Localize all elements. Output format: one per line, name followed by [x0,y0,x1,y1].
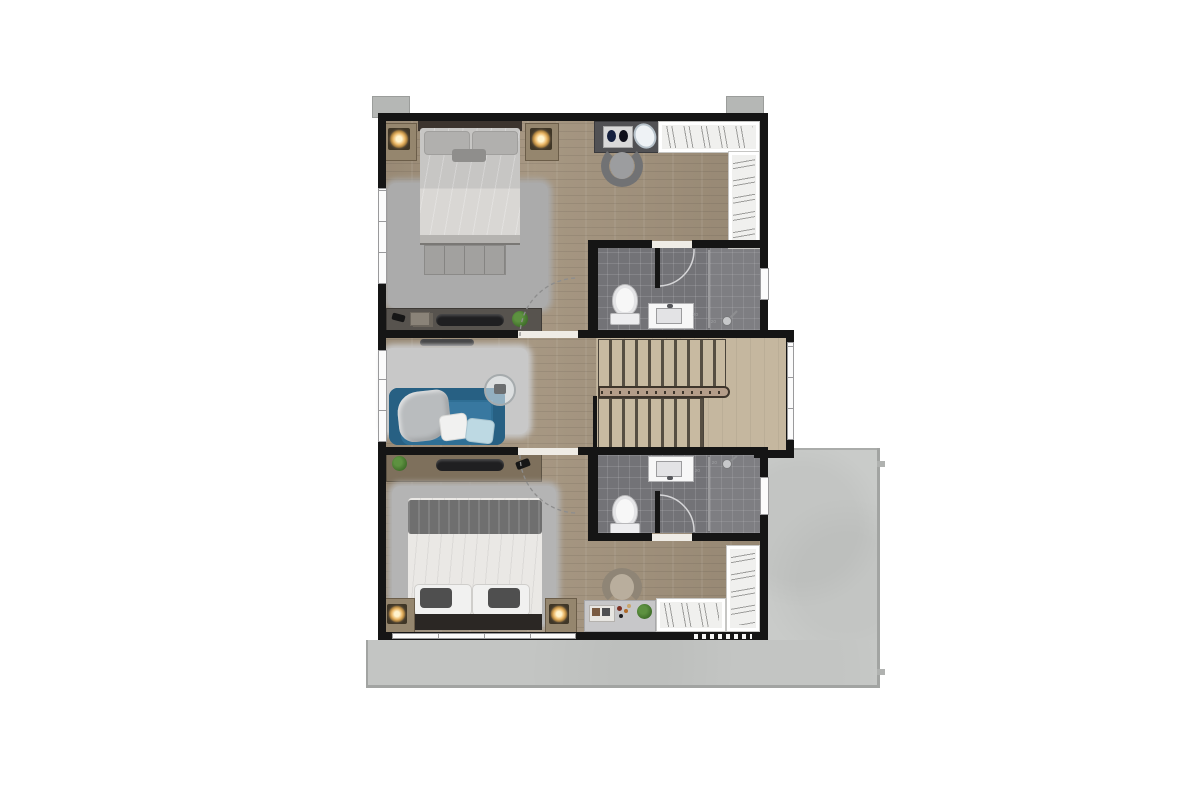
closet-1-hanger-ticks [665,126,753,148]
hall-wall-tv [420,339,474,346]
drain-mark-1a: 20 [693,313,698,318]
wall-right-upper [760,113,768,338]
bed-1-foot-frame [420,235,520,245]
dashed-vent-bottom [694,634,752,639]
walk-in-closet-1-top [658,121,760,153]
lamp-2-left-glow-icon [387,604,407,624]
wall-stair-bay-bottom [754,450,794,458]
window-hall-left [378,350,387,442]
wall-bathroom2-bottom-left [588,533,652,541]
window-bedroom1-left [378,188,387,284]
makeup-dot-black-icon [619,614,623,618]
desk-chair-seat [610,574,634,600]
wall-top [378,113,768,121]
wall-bathroom1-top-right [692,240,760,248]
wall-bathroom2-top [588,447,760,455]
bathroom-2-door-threshold [652,534,692,541]
bathroom-2-partition-stub [655,491,660,533]
toilet-1-tank [610,313,640,325]
bathroom-2-shower-zone [710,455,762,533]
lamp-left-glow-icon [388,128,410,150]
wall-bedroom2-north-left [378,447,518,455]
terrace-tick-lower [877,669,885,675]
closet-2-hanger-ticks [663,603,719,627]
floor-plan-canvas: 20 20 20 20 [0,0,1200,800]
sink-1-basin [656,308,682,324]
toilet-1-bowl [612,284,638,316]
sink-2-faucet-icon [667,476,673,480]
makeup-dot-orange-icon [624,609,628,613]
perfume-bottle-dark-icon [607,130,616,142]
wall-bathroom1-bottom [588,330,760,338]
closet-2-side-hanger-ticks [731,552,755,625]
terrace-tick-upper [877,461,885,467]
vanity-chair-seat [610,152,634,179]
balcony-bottom-edge [366,685,880,688]
bedroom-2-door-threshold [518,448,578,455]
terrace [768,448,880,640]
bathroom-1-door-threshold [652,241,692,248]
drain-mark-1b: 20 [711,320,716,325]
stair-upper-flight [598,339,726,388]
desk-plant-icon [637,604,652,619]
balcony-strip [366,640,880,688]
bench [424,245,506,275]
perfume-bottle-black-icon [619,130,628,142]
drain-mark-2b: 20 [712,461,717,466]
window-bathroom2-right [760,477,769,515]
balcony-left-edge [366,640,368,688]
bathroom-1-shower-zone [710,248,762,330]
walk-in-closet-2-side [726,545,760,632]
wall-bedroom1-south-left [378,330,518,338]
makeup-dot-gold-icon [627,604,631,608]
closet-1-side-hanger-ticks [733,158,755,242]
books-stack [410,312,430,326]
wall-bathroom2-bottom-right [692,533,760,541]
wall-right-lower [760,447,768,640]
bathroom-2-shower-partition [708,457,710,531]
walk-in-closet-1-side [728,151,760,249]
window-bedroom2-bottom [392,633,576,639]
terrace-right-edge [877,448,880,688]
stair-lower-flight [598,398,704,449]
window-bathroom1-right [760,268,769,300]
makeup-dot-red-icon [617,606,622,611]
bathroom-1-shower-partition [708,250,710,328]
stair-balusters [601,391,725,394]
pillow-blue [465,417,496,444]
tv-console-2-lens [436,459,504,471]
plant-1-icon [512,311,528,327]
wall-bathroom2-left [588,447,598,541]
tv-console-1-lens [436,314,504,326]
wall-bathroom1-left [588,240,598,338]
bedroom-1-door-threshold [518,331,578,338]
walk-in-closet-2-bottom [656,598,726,632]
window-stair-bay [787,342,794,440]
bathroom-1-partition-stub [655,248,660,288]
plant-2-icon [392,456,407,471]
desk-photo-icon-2 [602,608,610,616]
desk-photo-icon [592,608,600,616]
lamp-2-right-glow-icon [549,604,569,624]
bed-2-throw [408,500,542,534]
bed-1-accent-pillow [452,149,486,162]
bed-2-headboard [412,614,542,630]
table-decor-icon [494,384,506,394]
wall-bathroom1-top-left [596,240,652,248]
sink-1-faucet-icon [667,304,673,308]
bed-2-accent-pillow-right [488,588,520,608]
bed-2-accent-pillow-left [420,588,452,608]
sink-2-basin [656,461,682,477]
lamp-right-glow-icon [530,128,552,150]
drain-mark-2a: 20 [695,469,700,474]
